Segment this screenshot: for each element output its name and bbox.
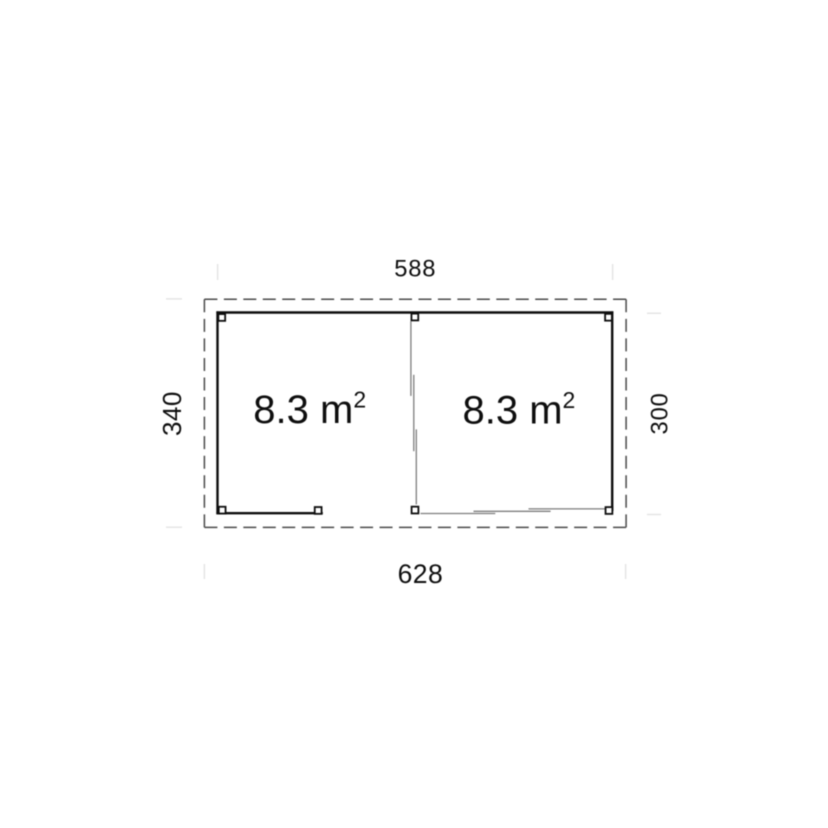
svg-text:340: 340	[157, 391, 187, 436]
svg-text:300: 300	[647, 392, 674, 434]
svg-text:588: 588	[394, 256, 436, 283]
svg-text:8.3 m2: 8.3 m2	[462, 387, 575, 433]
svg-text:8.3 m2: 8.3 m2	[253, 387, 366, 433]
svg-text:628: 628	[398, 559, 444, 589]
